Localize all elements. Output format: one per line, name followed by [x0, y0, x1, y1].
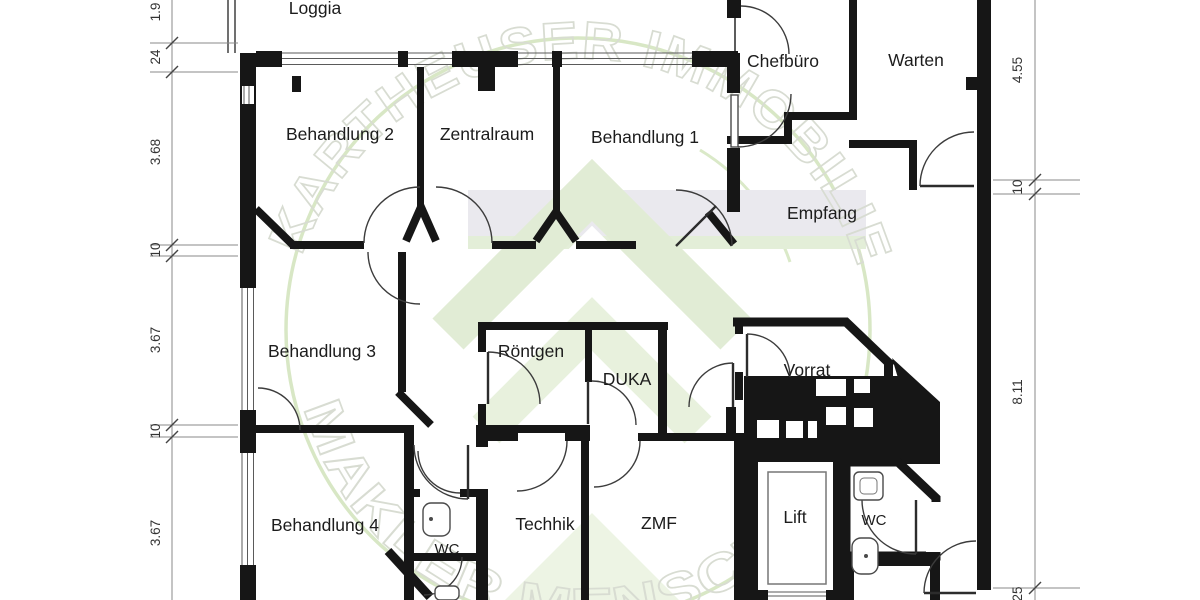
- label-warten: Warten: [888, 50, 944, 70]
- label-zmf: ZMF: [641, 513, 677, 533]
- dim-right-1: 10: [1010, 179, 1025, 194]
- dim-right-3: 25: [1010, 586, 1025, 600]
- dim-left-0: 1.9: [148, 3, 163, 22]
- toilet-right-icon: [854, 472, 883, 500]
- dim-left-3: 10: [148, 242, 163, 257]
- door-behandlung3: [368, 252, 420, 304]
- sink-icon: [423, 503, 450, 536]
- wall-stub: [478, 67, 495, 91]
- floorplan-page: KARTHEUSER IMMOBILIEN MAKLER.MENSCHEN: [0, 0, 1200, 600]
- left-ticks: [150, 37, 238, 443]
- dim-right-2: 8.11: [1010, 379, 1025, 404]
- entry-door: [920, 132, 974, 186]
- door-behandlung4: [414, 445, 468, 499]
- label-behandlung2: Behandlung 2: [286, 124, 394, 144]
- label-lift: Lift: [783, 507, 806, 527]
- dim-right-0: 4.55: [1010, 57, 1025, 83]
- left-dimension-labels: 1.9 24 3.68 10 3.67 10 3.67: [148, 3, 163, 547]
- right-ticks: [993, 174, 1080, 594]
- door-techhik: [517, 441, 567, 491]
- label-loggia: Loggia: [289, 0, 342, 18]
- wall-techhik-zmf: [581, 433, 589, 600]
- dim-left-1: 24: [148, 49, 163, 65]
- label-roentgen: Röntgen: [498, 341, 564, 361]
- right-exterior-wall: [966, 0, 991, 590]
- door-zmf: [594, 441, 640, 487]
- toilet-icon: [435, 586, 459, 600]
- label-wc-rechts: WC: [862, 512, 887, 529]
- label-behandlung4: Behandlung 4: [271, 515, 379, 535]
- wall-b2-zentralraum: [417, 67, 424, 207]
- label-wc-mitte: WC: [435, 541, 460, 558]
- label-chefbuero: Chefbüro: [747, 51, 819, 71]
- dim-left-4: 3.67: [148, 327, 163, 353]
- label-duka: DUKA: [603, 369, 652, 389]
- door-wc-mitte: [418, 451, 460, 493]
- wall-zmf-right: [734, 433, 744, 600]
- floorplan-svg: KARTHEUSER IMMOBILIEN MAKLER.MENSCHEN: [0, 0, 1200, 600]
- dim-left-6: 3.67: [148, 520, 163, 546]
- door-chefbuero-top: [741, 6, 789, 54]
- label-zentralraum: Zentralraum: [440, 124, 534, 144]
- wall-b3-right: [398, 252, 406, 392]
- right-dimension-labels: 4.55 10 8.11 25: [1010, 57, 1025, 600]
- label-behandlung3: Behandlung 3: [268, 341, 376, 361]
- label-behandlung1: Behandlung 1: [591, 127, 699, 147]
- label-empfang: Empfang: [787, 203, 857, 223]
- wall-zentralraum-b1: [553, 67, 560, 213]
- wall-roentgen-duka: [585, 322, 592, 382]
- sink-right-icon: [852, 538, 878, 574]
- dim-left-2: 3.68: [148, 139, 163, 165]
- dim-left-5: 10: [148, 423, 163, 438]
- label-vorrat: Vorrat: [784, 360, 831, 380]
- label-techhik: Techhik: [515, 514, 575, 534]
- stairwell: [744, 358, 940, 464]
